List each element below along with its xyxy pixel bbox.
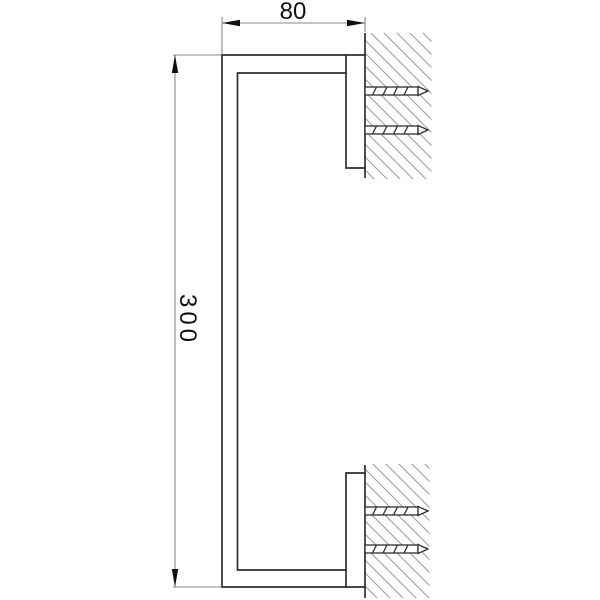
arrowhead-right-icon <box>347 20 365 26</box>
mounting-plate-top <box>346 55 365 168</box>
dimension-width-label: 80 <box>280 0 307 25</box>
dimension-height-label: 300 <box>174 294 201 346</box>
arrowhead-down-icon <box>172 569 178 587</box>
arrowhead-up-icon <box>172 55 178 73</box>
screw-bottom-2 <box>365 545 428 554</box>
rail-outer-contour <box>222 55 365 587</box>
screw-bottom-1 <box>365 507 428 516</box>
wall-section-top <box>365 33 432 179</box>
wall-hatch-top <box>366 33 432 179</box>
wall-hatch-bottom <box>366 464 430 598</box>
mounting-plate-bottom <box>346 473 365 587</box>
rail-inner-contour <box>238 73 347 570</box>
dimension-height: 300 <box>172 55 221 587</box>
arrowhead-left-icon <box>222 20 240 26</box>
technical-drawing-svg: 80 300 <box>0 0 600 600</box>
drawing-canvas: 80 300 <box>0 0 600 600</box>
towel-rail-profile <box>222 55 365 587</box>
screw-top-2 <box>365 126 428 135</box>
screw-top-1 <box>365 87 428 96</box>
wall-section-bottom <box>365 464 430 598</box>
dimension-width: 80 <box>222 0 365 54</box>
